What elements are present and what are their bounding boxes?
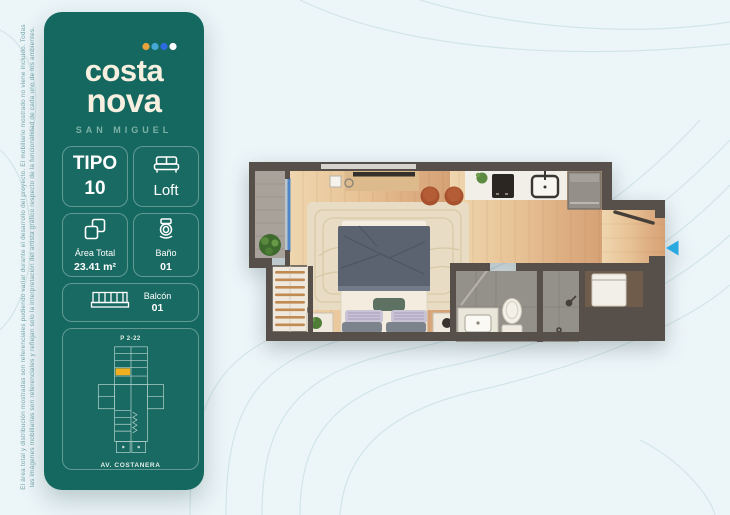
keyplan-card: P 2-22 (62, 328, 199, 470)
disclaimer-line-2: las imágenes mobiliarias son referencial… (28, 7, 37, 507)
balcony-plant (259, 234, 281, 256)
disclaimer-text: El área total y distribución mostradas s… (19, 7, 39, 507)
window (321, 164, 416, 169)
closet (272, 266, 308, 332)
bed-icon (153, 155, 180, 179)
balcony-card: Balcón 01 (62, 283, 199, 322)
unit-type-label: TIPO (73, 153, 117, 175)
shower-divider-wall (537, 271, 543, 342)
floorplan-drawing (249, 162, 679, 347)
keyplan-unit-label: P 2-22 (120, 336, 141, 342)
bathroom-label: Baño (155, 248, 176, 258)
keyplan-highlighted-unit (115, 368, 130, 375)
total-area-label: Área Total (75, 248, 115, 258)
brand-subtitle: SAN MIGUEL (44, 125, 204, 135)
unit-type-value: 10 (84, 178, 105, 200)
kitchen-counter (465, 170, 567, 200)
balcony (255, 171, 285, 258)
balcony-glass-door (288, 178, 291, 252)
page: El área total y distribución mostradas s… (0, 0, 730, 515)
total-area-card: Área Total 23.41 m² (62, 213, 128, 277)
bathroom-value: 01 (160, 261, 172, 273)
brand-dots (142, 42, 178, 51)
keyplan-drawing (88, 345, 174, 457)
entrance-arrow-icon (666, 241, 679, 256)
cooktop (492, 174, 514, 198)
floorplan-panel (249, 162, 679, 347)
total-area-value: 23.41 m² (74, 261, 116, 273)
balcony-label: Balcón (144, 291, 172, 301)
brand-name-line2: nova (44, 86, 204, 116)
toilet-icon (156, 218, 176, 245)
loft-card: Loft (133, 146, 199, 207)
brand-logo: costa nova (44, 56, 204, 116)
fridge (568, 172, 601, 209)
info-sidebar: costa nova SAN MIGUEL TIPO 10 Loft (44, 12, 204, 490)
toilet (502, 299, 522, 337)
railing-icon (90, 290, 130, 315)
bathroom (456, 268, 579, 342)
floorplan-icon (84, 218, 106, 245)
loft-label: Loft (153, 182, 178, 199)
laundry-closet (585, 271, 643, 311)
bed (338, 220, 430, 334)
disclaimer-line-1: El área total y distribución mostradas s… (19, 7, 28, 507)
bathroom-card: Baño 01 (133, 213, 199, 277)
balcony-value: 01 (152, 302, 164, 314)
keyplan-street-label: AV. COSTANERA (100, 462, 160, 469)
unit-type-card: TIPO 10 (62, 146, 128, 207)
